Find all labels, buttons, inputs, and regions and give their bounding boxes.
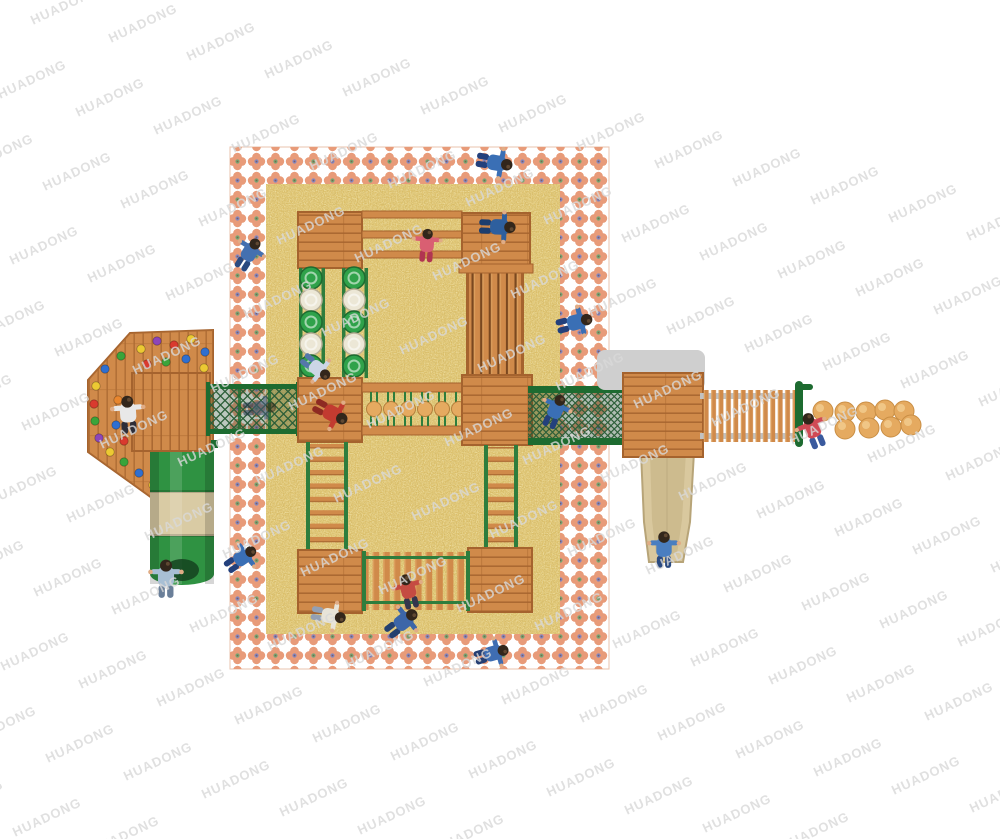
right-tower-platform: [623, 373, 703, 457]
tube-slide: [146, 440, 218, 585]
ladder-right: [484, 445, 518, 550]
monkey-bar-rails: [362, 211, 462, 258]
platform-bottom-left: [298, 550, 362, 613]
playground-product-render: HUADONGHUADONGHUADONGHUADONGHUADONGHUADO…: [0, 0, 1000, 839]
platform-center-right: [462, 375, 532, 445]
ladder-left: [306, 442, 348, 552]
platform-top-left: [298, 212, 362, 268]
net-tunnel-bridge: [206, 382, 300, 436]
plank-ramp: [459, 264, 533, 376]
stepping-balls: [813, 400, 921, 439]
lattice-bridge: [528, 386, 623, 445]
left-tower-platform: [132, 373, 210, 451]
rung-bridge: [700, 381, 813, 447]
bridge-end-post: [795, 381, 803, 447]
playground-scene: [0, 0, 1000, 839]
platform-bottom-right: [468, 548, 532, 612]
